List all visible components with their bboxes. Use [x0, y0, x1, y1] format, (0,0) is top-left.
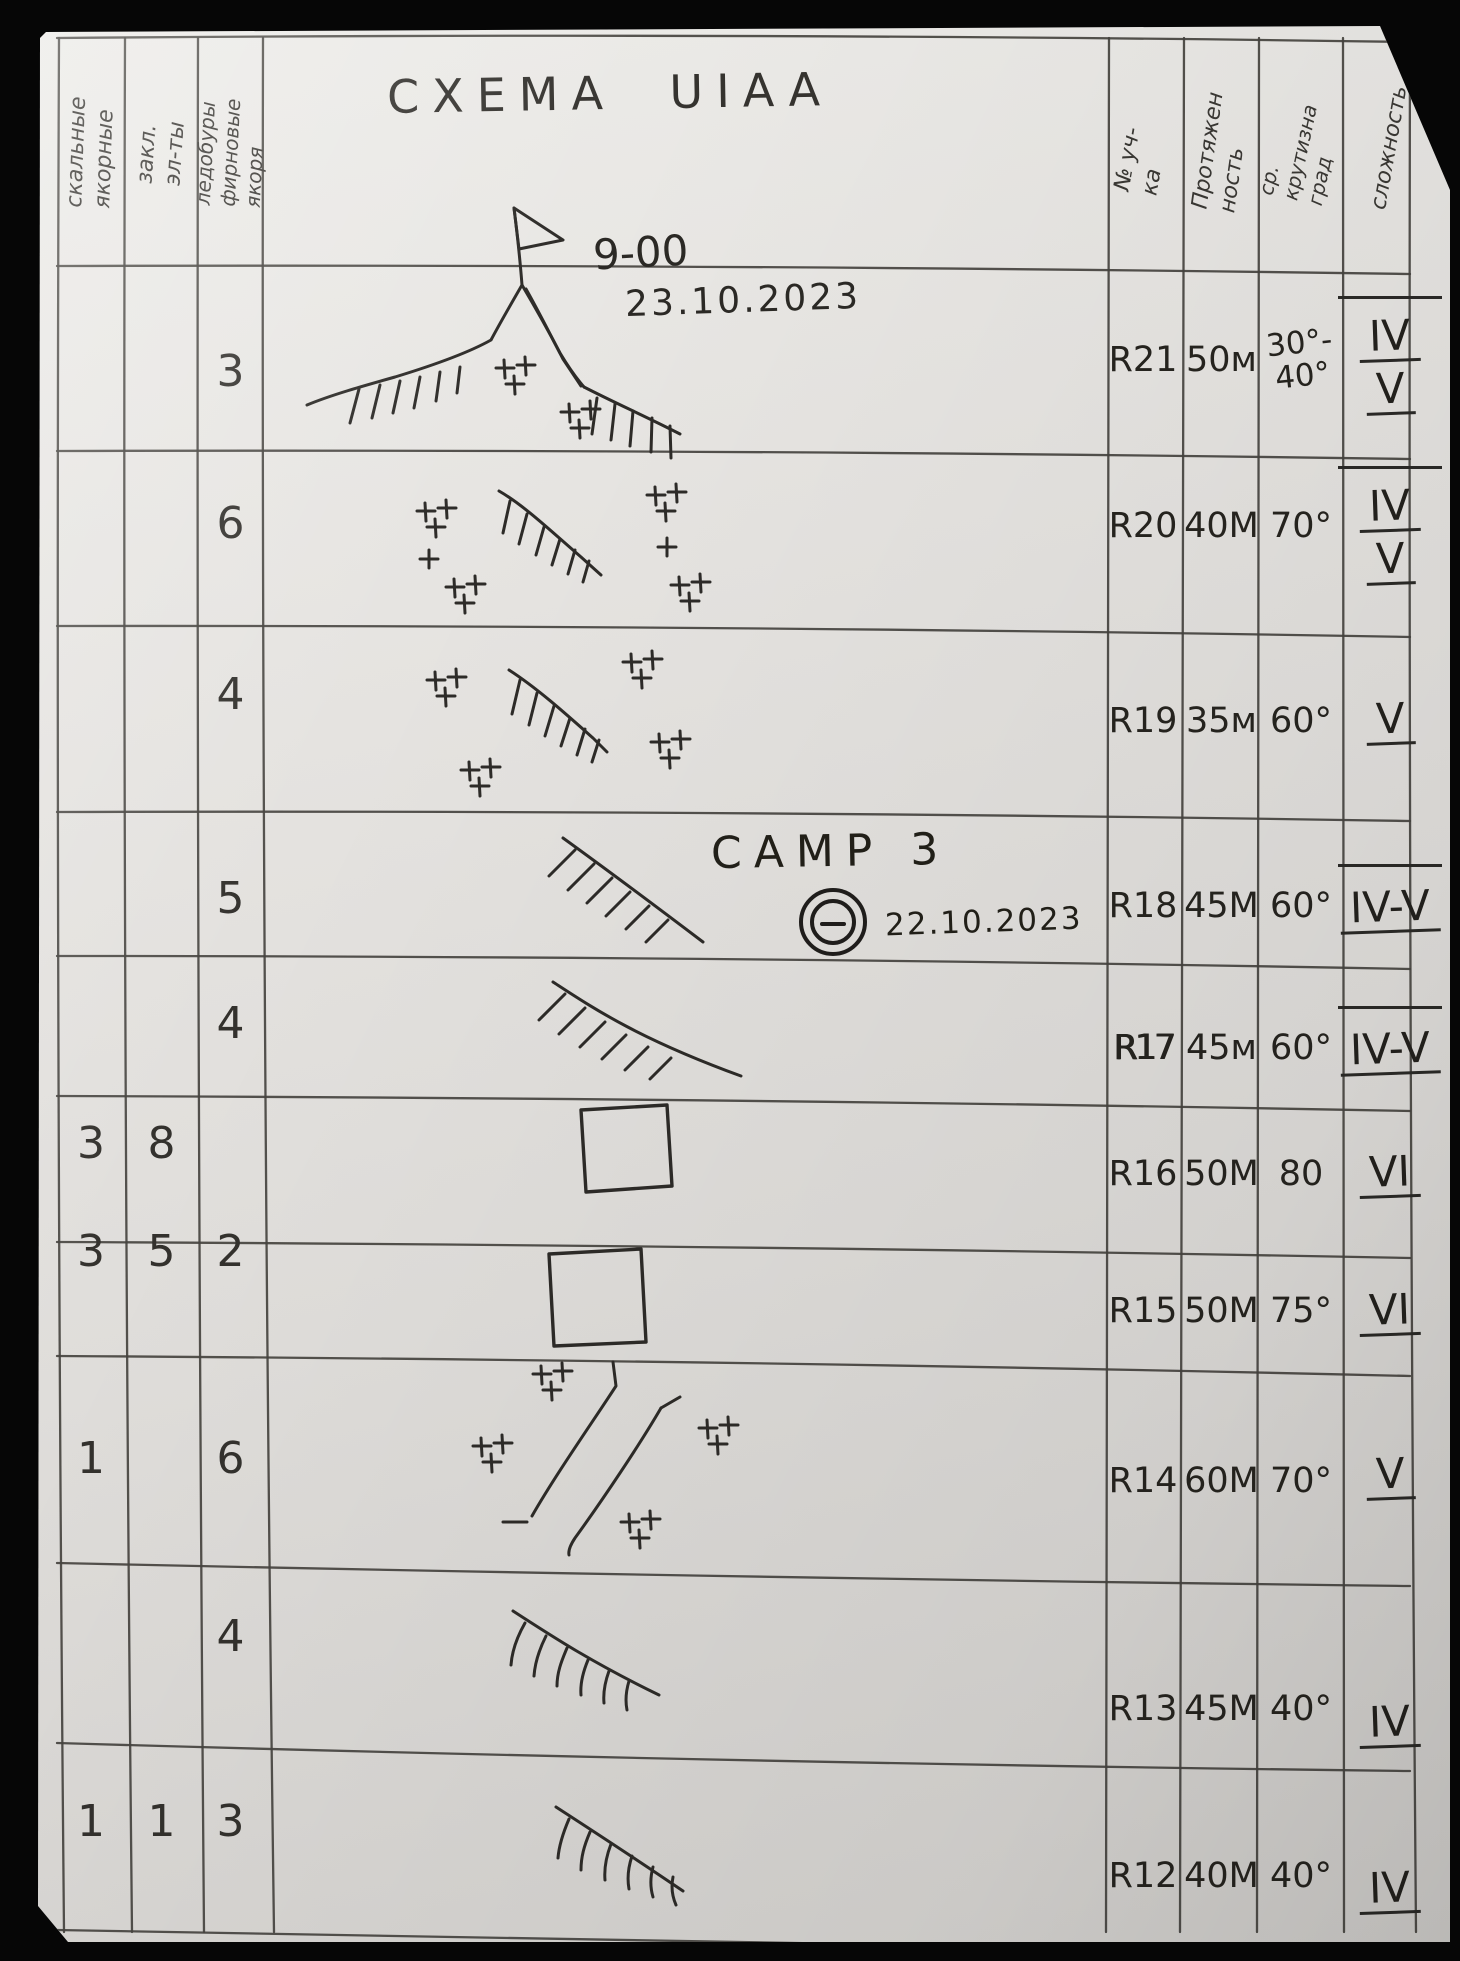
slope-hatch-sketch [263, 1563, 1109, 1743]
header-length: Протяжен ность [1184, 38, 1259, 266]
rock-block-sketch [263, 1096, 1109, 1242]
pitch-length: 35м [1184, 686, 1259, 756]
pitch-difficulty: VI [1338, 1274, 1442, 1350]
pitch-length: 45М [1184, 871, 1259, 941]
rock-anchors-count: 1 [57, 1423, 125, 1493]
photo-background: CXEMA UIAA скальные якорные закл. эл-ты … [0, 0, 1460, 1961]
bergschrund-crosses-sketch [263, 626, 1109, 812]
pitch-steepness: 70° [1259, 1446, 1343, 1516]
summit-flag-sketch: 9-00 23.10.2023 [263, 146, 1109, 451]
ice-screws-count: 4 [198, 988, 263, 1058]
ice-screws-count: 2 [198, 1216, 263, 1286]
rock-anchors-count: 3 [57, 1216, 125, 1286]
section-number: R21 [1102, 325, 1184, 395]
header-steepness: ср. крутизна град [1259, 38, 1343, 266]
pitch-steepness: 80 [1259, 1139, 1343, 1209]
header-ice-screws: ледобуры фирновые якоря [198, 38, 263, 266]
section-number: R15 [1102, 1276, 1184, 1346]
pitch-length: 40М [1184, 491, 1259, 561]
ice-screws-count: 4 [198, 1601, 263, 1671]
pitch-difficulty: IV V [1338, 466, 1442, 599]
pitch-difficulty: IV [1338, 1852, 1442, 1928]
pitch-length: 50М [1184, 1276, 1259, 1346]
pitch-steepness: 60° [1259, 1013, 1343, 1083]
ice-screws-count: 6 [198, 1423, 263, 1493]
couloir-sketch [263, 1356, 1109, 1563]
pitch-difficulty: V [1338, 1438, 1442, 1514]
ice-screws-count: 5 [198, 863, 263, 933]
rock-block-sketch [263, 1242, 1109, 1356]
nuts-count: 8 [125, 1108, 198, 1178]
pitch-length: 45М [1184, 1674, 1259, 1744]
ice-screws-count: 4 [198, 659, 263, 729]
pitch-length: 50М [1184, 1139, 1259, 1209]
pitch-length: 60М [1184, 1446, 1259, 1516]
header-difficulty: сложность [1338, 42, 1442, 254]
pitch-steepness: 40° [1259, 1674, 1343, 1744]
pitch-steepness: 70° [1259, 491, 1343, 561]
pitch-steepness: 60° [1259, 871, 1343, 941]
camp-label: CAMP 3 [711, 824, 951, 879]
ice-screws-count: 3 [198, 1786, 263, 1856]
pitch-difficulty: IV-V [1338, 1006, 1442, 1093]
section-number: R19 [1102, 686, 1184, 756]
summit-date-note: 23.10.2023 [624, 276, 861, 325]
pitch-steepness: 60° [1259, 686, 1343, 756]
flag-icon [514, 208, 563, 249]
pitch-steepness: 75° [1259, 1276, 1343, 1346]
schema-title: CXEMA UIAA [320, 61, 901, 125]
section-number: R18 [1102, 871, 1184, 941]
section-number: R14 [1102, 1446, 1184, 1516]
camp-slope-sketch: CAMP 3 22.10.2023 [263, 812, 1109, 957]
tent-icon [801, 890, 865, 954]
rock-anchors-count: 1 [57, 1786, 125, 1856]
header-section-number: № уч-ка [1102, 38, 1184, 266]
section-number: R16 [1102, 1139, 1184, 1209]
section-number: R12 [1102, 1841, 1184, 1911]
slope-hatch-sketch [263, 956, 1109, 1096]
nuts-count: 1 [125, 1786, 198, 1856]
pitch-difficulty: IV-V [1338, 864, 1442, 951]
pitch-steepness: 40° [1259, 1841, 1343, 1911]
pitch-difficulty: V [1338, 686, 1442, 756]
ice-screws-count: 6 [198, 488, 263, 558]
pitch-length: 40М [1184, 1841, 1259, 1911]
slope-hatch-sketch [263, 1743, 1109, 1930]
pitch-difficulty: IV [1338, 1686, 1442, 1762]
header-nuts: закл. эл-ты [125, 38, 198, 266]
rock-anchors-count: 3 [57, 1108, 125, 1178]
ice-screws-count: 3 [198, 336, 263, 406]
bergschrund-crosses-sketch [263, 451, 1109, 626]
camp-date-note: 22.10.2023 [884, 901, 1083, 944]
pitch-difficulty: VI [1338, 1136, 1442, 1212]
pitch-steepness: 30°- 40° [1255, 311, 1348, 409]
pitch-length: 50м [1184, 325, 1259, 395]
section-number: R17 [1102, 1013, 1184, 1083]
summit-time-note: 9-00 [592, 226, 690, 280]
section-number: R13 [1102, 1674, 1184, 1744]
paper-sheet: CXEMA UIAA скальные якорные закл. эл-ты … [38, 26, 1450, 1942]
header-rock-anchors: скальные якорные [57, 38, 125, 266]
pitch-length: 45м [1184, 1013, 1259, 1083]
nuts-count: 5 [125, 1216, 198, 1286]
pitch-difficulty: IV V [1338, 296, 1442, 429]
section-number: R20 [1102, 491, 1184, 561]
